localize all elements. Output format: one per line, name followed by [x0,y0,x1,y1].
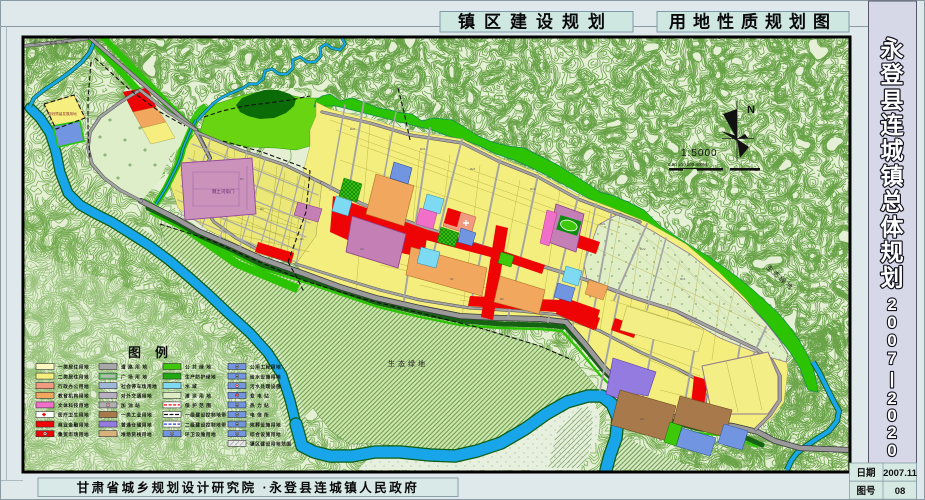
svg-text:生态绿地: 生态绿地 [388,359,428,368]
svg-text:给水设施用地: 给水设施用地 [250,373,281,380]
svg-text:S1: S1 [450,277,454,281]
svg-text:普通仓储用地: 普通仓储用地 [121,421,152,428]
svg-text:1:5000: 1:5000 [681,148,718,159]
svg-text:堆场货栈用地: 堆场货栈用地 [121,431,152,438]
svg-text:M1: M1 [560,327,564,331]
svg-text:综合设施用地: 综合设施用地 [250,431,281,438]
svg-text:0: 0 [887,313,896,332]
svg-text:N: N [747,104,755,116]
svg-text:一类工业用地: 一类工业用地 [121,412,152,419]
svg-text:0: 0 [887,441,896,460]
svg-text:图号: 图号 [856,486,876,497]
svg-text:甘肃省城乡规划设计研究院 ·永登县连城镇人民政府: 甘肃省城乡规划设计研究院 ·永登县连城镇人民政府 [77,480,420,495]
svg-text:污水处理设施: 污水处理设施 [250,383,281,390]
svg-text:变 电 站: 变 电 站 [250,393,269,400]
svg-text:教育机构用地: 教育机构用地 [57,393,89,400]
svg-text:二类居住用地: 二类居住用地 [58,373,89,380]
svg-text:R22: R22 [530,187,536,191]
svg-text:08: 08 [895,486,906,497]
svg-text:永: 永 [881,36,904,62]
svg-text:W1: W1 [640,417,645,421]
svg-text:保 护 范 围: 保 护 范 围 [184,402,211,409]
svg-text:集贸市场用地: 集贸市场用地 [57,431,89,438]
svg-text:2007.11: 2007.11 [883,468,918,479]
svg-text:一类居住用地: 一类居住用地 [58,364,89,371]
svg-text:2: 2 [887,295,896,314]
svg-text:R1: R1 [300,237,304,241]
svg-text:魏土司衙门: 魏土司衙门 [212,188,235,195]
svg-text:2: 2 [887,423,896,442]
svg-text:公 共 绿 地: 公 共 绿 地 [185,364,211,371]
svg-text:道 路 用 地: 道 路 用 地 [121,364,147,371]
svg-text:医疗卫生用地: 医疗卫生用地 [58,412,89,419]
svg-text:商业金融用地: 商业金融用地 [58,421,89,428]
svg-text:7: 7 [887,349,896,368]
svg-text:0 50 100 200: 0 50 100 200 400M [668,162,707,167]
svg-text:R22: R22 [640,247,646,251]
svg-text:连: 连 [881,112,905,138]
svg-text:用地性质规划图: 用地性质规划图 [669,12,837,32]
svg-text:对外交通用地: 对外交通用地 [121,393,152,400]
svg-text:规: 规 [881,239,904,265]
svg-text:殡葬设施用地: 殡葬设施用地 [250,421,281,428]
svg-text:登: 登 [880,61,905,87]
svg-text:热 力 站: 热 力 站 [250,402,269,409]
svg-text:规划预留发展用地: 规划预留发展用地 [48,111,77,116]
svg-text:一级建设控制地带: 一级建设控制地带 [185,412,227,419]
svg-text:二级建设控制地带: 二级建设控制地带 [185,421,227,428]
svg-text:行政办公用地: 行政办公用地 [57,383,89,390]
svg-text:文体科技用地: 文体科技用地 [58,402,89,409]
svg-text:R2: R2 [500,297,504,301]
svg-text:总: 总 [881,188,904,214]
svg-text:至三一三省道 · 兰州: 至三一三省道 · 兰州 [33,39,69,45]
svg-text:划: 划 [881,265,904,291]
svg-text:0: 0 [887,331,896,350]
svg-text:R21: R21 [470,167,476,171]
svg-text:镇区建设规划: 镇区建设规划 [458,12,614,32]
svg-text:公用工程用地: 公用工程用地 [250,364,281,371]
svg-text:广 场 用 地: 广 场 用 地 [121,373,147,380]
svg-text:水 域: 水 域 [185,383,197,390]
svg-text:加 油 站: 加 油 站 [120,402,140,409]
svg-text:环卫设施用地: 环卫设施用地 [185,431,216,438]
svg-text:镇区建设用地范围: 镇区建设用地范围 [250,441,292,448]
svg-text:镇: 镇 [881,163,904,189]
svg-text:城: 城 [881,138,904,164]
svg-text:日期: 日期 [856,467,875,479]
svg-text:R21: R21 [350,127,356,131]
svg-text:电 信 所: 电 信 所 [250,412,269,419]
svg-text:R1: R1 [240,177,244,181]
svg-text:生产防护绿地: 生产防护绿地 [185,373,216,380]
svg-text:社会停车场用地: 社会停车场用地 [120,383,157,390]
svg-text:县: 县 [881,87,904,113]
svg-text:C2: C2 [360,247,364,251]
svg-text:R21: R21 [420,147,426,151]
svg-text:R21: R21 [600,222,606,226]
svg-text:R21: R21 [680,277,686,281]
svg-text:R1: R1 [260,207,264,211]
svg-text:体: 体 [881,214,905,240]
svg-text:滩 涂 用 地: 滩 涂 用 地 [185,393,211,400]
svg-text:|: | [890,369,895,388]
svg-text:图例: 图例 [128,345,182,360]
